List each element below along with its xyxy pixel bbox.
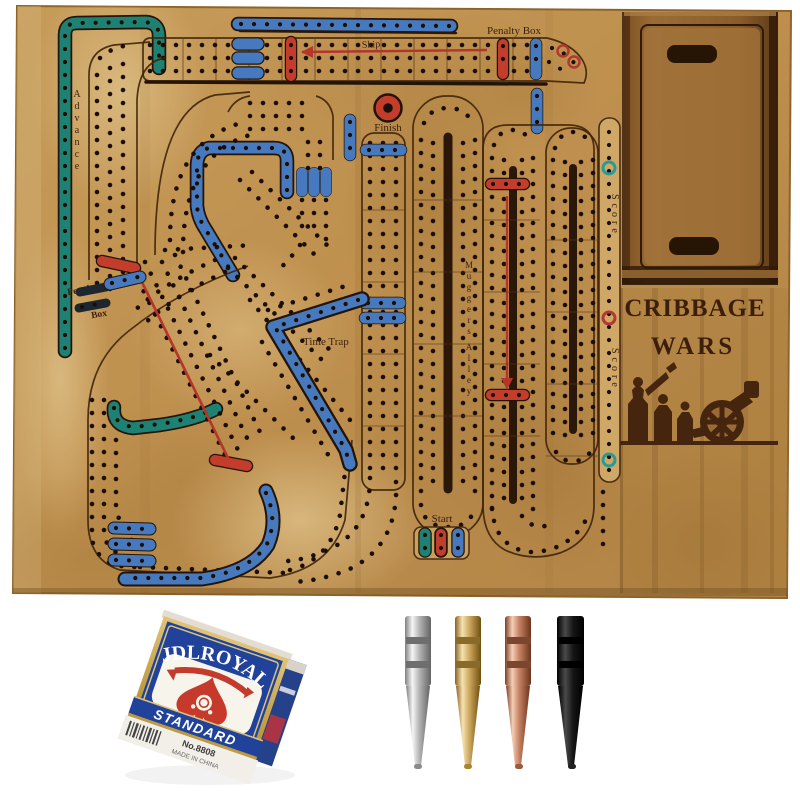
- svg-text:Score: Score: [609, 194, 620, 237]
- svg-text:n: n: [75, 137, 80, 148]
- svg-text:WARS: WARS: [651, 333, 735, 360]
- svg-text:A: A: [73, 89, 81, 100]
- svg-text:Score: Score: [609, 348, 620, 391]
- svg-text:s: s: [467, 326, 471, 336]
- svg-text:Penalty Box: Penalty Box: [487, 25, 542, 37]
- svg-text:a: a: [75, 125, 80, 136]
- svg-text:r: r: [468, 315, 471, 325]
- svg-text:Skip: Skip: [362, 39, 381, 51]
- svg-text:Time Trap: Time Trap: [303, 336, 349, 348]
- svg-text:d: d: [75, 101, 80, 112]
- svg-text:g: g: [467, 293, 472, 303]
- svg-text:CRIBBAGE: CRIBBAGE: [624, 295, 765, 322]
- svg-text:e: e: [75, 161, 80, 172]
- svg-text:e: e: [467, 304, 471, 314]
- svg-text:Start: Start: [432, 513, 453, 525]
- svg-text:c: c: [75, 149, 80, 160]
- svg-text:e: e: [467, 375, 471, 385]
- svg-text:y: y: [467, 386, 472, 396]
- svg-text:M: M: [465, 260, 473, 270]
- svg-text:g: g: [467, 282, 472, 292]
- svg-text:v: v: [75, 113, 80, 124]
